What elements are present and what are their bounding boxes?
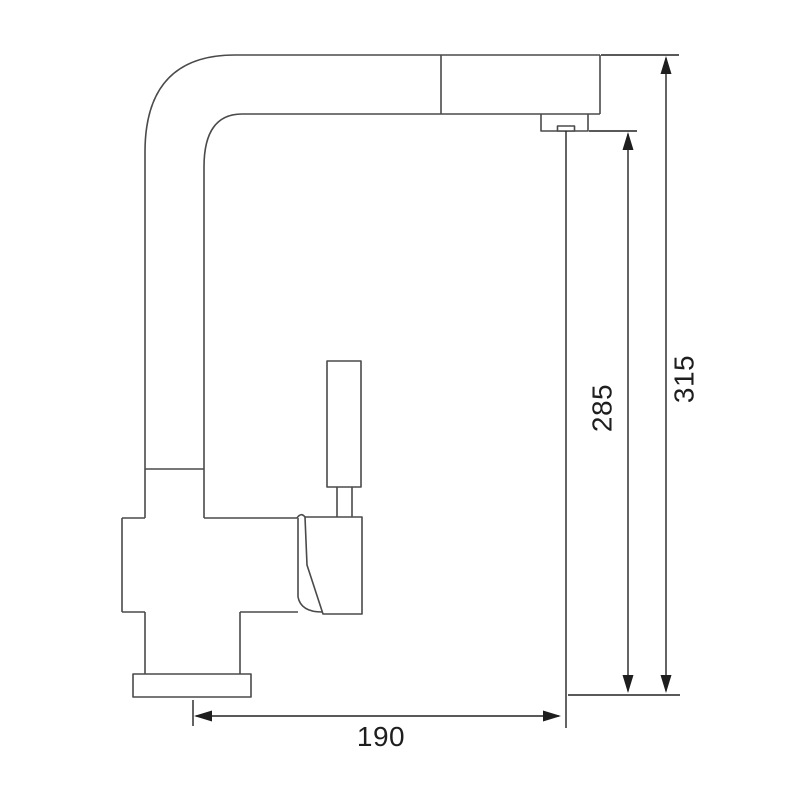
arrowhead-315-up [661, 56, 672, 74]
handle-base [305, 517, 362, 614]
dim-spout-reach: 190 [194, 711, 561, 753]
handle-lever [327, 361, 361, 487]
arrowhead-285-down [623, 675, 634, 693]
aerator [558, 126, 575, 131]
faucet-outline [122, 55, 600, 697]
dim-label-315: 315 [669, 355, 700, 403]
base-flange [133, 674, 251, 697]
arrowhead-315-down [661, 675, 672, 693]
dimension-drawing: 315 285 190 [0, 0, 800, 800]
spout-inner-contour [204, 114, 600, 518]
faucet-drawing-canvas: 315 285 190 [0, 0, 800, 800]
handle-base-top-connector [297, 515, 305, 518]
arrowhead-190-right [543, 711, 561, 722]
dimension-annotations: 315 285 190 [193, 55, 700, 752]
dim-label-190: 190 [357, 721, 405, 752]
arrowhead-285-up [623, 132, 634, 150]
dim-total-height: 315 [661, 56, 700, 693]
dim-label-285: 285 [587, 384, 618, 432]
arrowhead-190-left [194, 711, 212, 722]
spout-outer-contour [145, 55, 600, 518]
dim-outlet-height: 285 [587, 132, 634, 693]
